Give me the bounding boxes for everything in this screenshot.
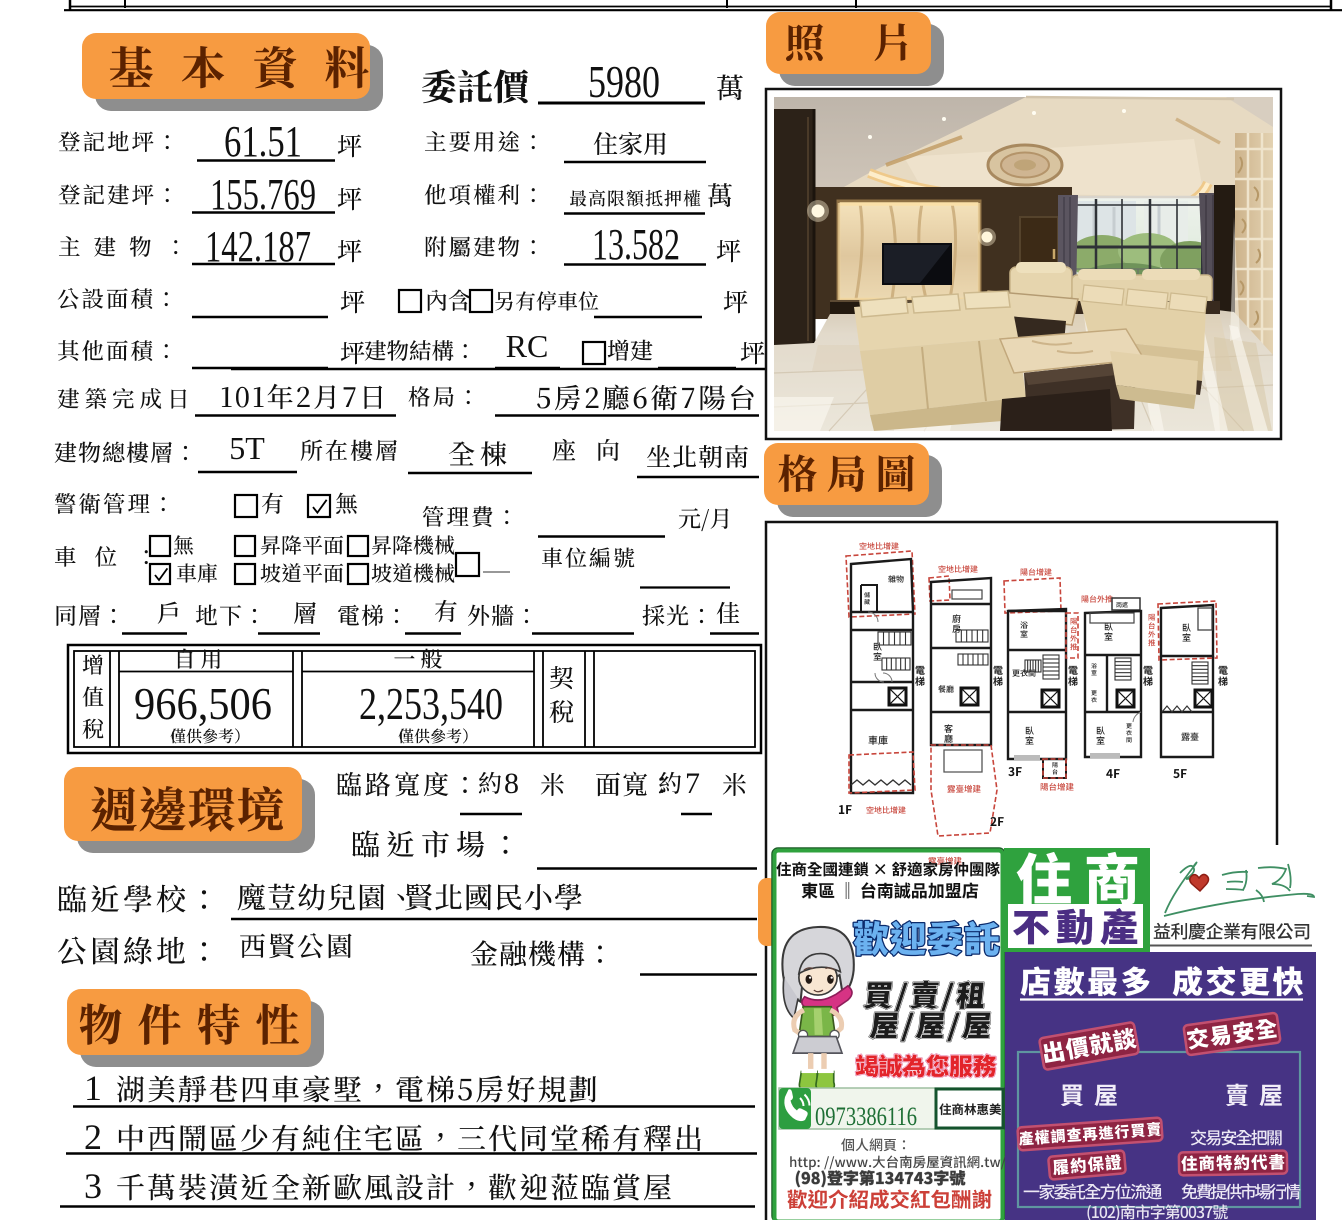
svg-text:8: 8 bbox=[504, 767, 519, 800]
svg-text:5980: 5980 bbox=[588, 56, 660, 107]
svg-text:RC: RC bbox=[506, 328, 549, 364]
svg-text:3: 3 bbox=[84, 1166, 102, 1206]
svg-text:0973386116: 0973386116 bbox=[815, 1102, 917, 1131]
svg-text:1: 1 bbox=[84, 1068, 102, 1108]
svg-text:61.51: 61.51 bbox=[224, 117, 302, 166]
svg-text:7: 7 bbox=[685, 767, 700, 800]
svg-text:13.582: 13.582 bbox=[592, 220, 680, 269]
svg-text:2: 2 bbox=[84, 1117, 102, 1157]
svg-text:2,253,540: 2,253,540 bbox=[359, 678, 503, 729]
svg-text:5T: 5T bbox=[229, 430, 265, 466]
svg-text:966,506: 966,506 bbox=[134, 678, 272, 729]
